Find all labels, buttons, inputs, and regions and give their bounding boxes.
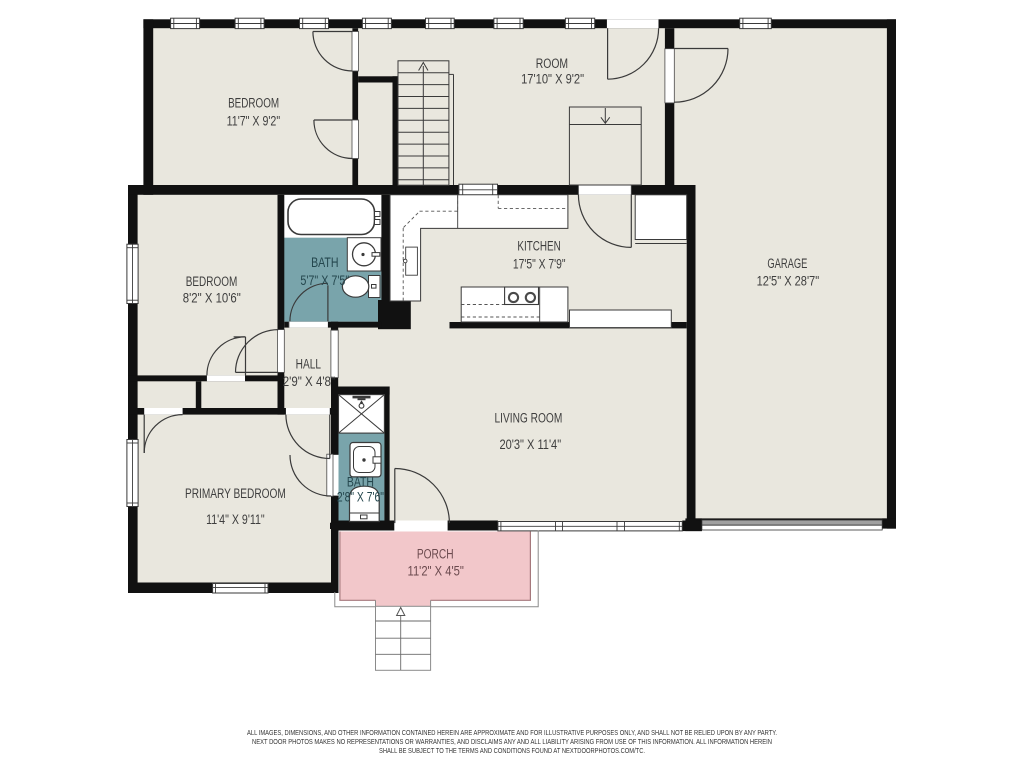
svg-text:11'7" X 9'2": 11'7" X 9'2" — [227, 113, 281, 129]
svg-text:17'10" X 9'2": 17'10" X 9'2" — [521, 72, 584, 88]
svg-text:LIVING ROOM: LIVING ROOM — [495, 410, 563, 426]
svg-text:SHALL BE SUBJECT TO THE TERMS: SHALL BE SUBJECT TO THE TERMS AND CONDIT… — [379, 746, 645, 755]
svg-text:GARAGE: GARAGE — [767, 256, 807, 272]
svg-text:BATH: BATH — [311, 255, 338, 271]
svg-text:NEXT DOOR PHOTOS MAKES NO REPR: NEXT DOOR PHOTOS MAKES NO REPRESENTATION… — [252, 737, 772, 746]
svg-text:8'2" X 10'6": 8'2" X 10'6" — [183, 291, 241, 307]
svg-text:ALL IMAGES, DIMENSIONS, AND OT: ALL IMAGES, DIMENSIONS, AND OTHER INFORM… — [247, 728, 777, 737]
svg-text:BEDROOM: BEDROOM — [186, 274, 238, 290]
svg-text:11'4" X 9'11": 11'4" X 9'11" — [206, 512, 265, 528]
svg-text:HALL: HALL — [296, 356, 321, 372]
svg-text:5'7" X 7'5": 5'7" X 7'5" — [300, 273, 349, 289]
svg-text:PRIMARY BEDROOM: PRIMARY BEDROOM — [185, 486, 286, 502]
svg-text:BATH: BATH — [347, 474, 374, 490]
svg-text:2'8" X 7'6": 2'8" X 7'6" — [337, 490, 384, 506]
svg-text:PORCH: PORCH — [417, 547, 454, 563]
svg-text:ROOM: ROOM — [536, 56, 568, 72]
svg-text:12'5" X 28'7": 12'5" X 28'7" — [757, 274, 820, 290]
svg-text:BEDROOM: BEDROOM — [228, 96, 279, 112]
svg-text:2'9" X 4'8": 2'9" X 4'8" — [283, 374, 335, 390]
svg-text:20'3" X 11'4": 20'3" X 11'4" — [499, 437, 561, 453]
svg-text:11'2" X 4'5": 11'2" X 4'5" — [408, 563, 464, 579]
svg-text:17'5" X 7'9": 17'5" X 7'9" — [513, 256, 566, 272]
svg-text:KITCHEN: KITCHEN — [517, 239, 560, 255]
